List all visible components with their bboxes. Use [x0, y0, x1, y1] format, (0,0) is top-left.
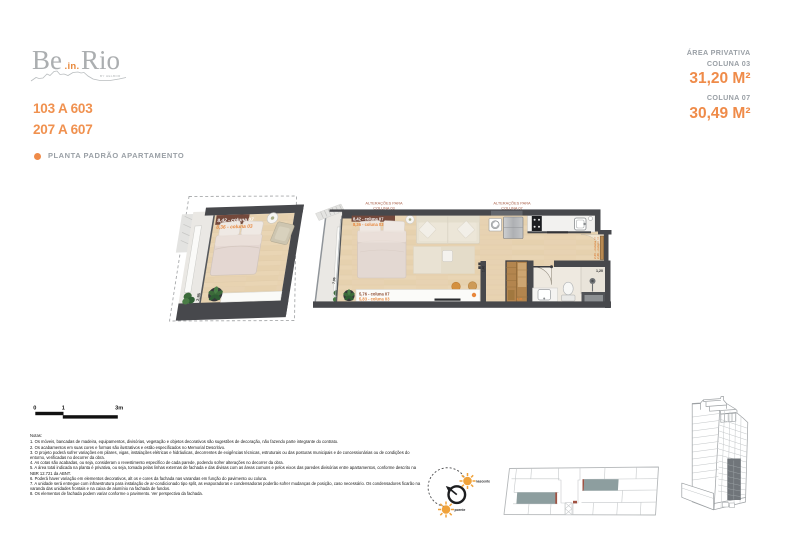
svg-text:8,36 - coluna 03: 8,36 - coluna 03 — [216, 224, 254, 231]
svg-text:8,36 - coluna 03: 8,36 - coluna 03 — [353, 222, 384, 227]
svg-text:poente: poente — [455, 508, 466, 512]
svg-text:1,20: 1,20 — [596, 269, 603, 273]
svg-text:5,76 - coluna 07: 5,76 - coluna 07 — [359, 291, 390, 296]
svg-text:1: 1 — [62, 406, 65, 412]
svg-text:1,45: 1,45 — [517, 297, 523, 301]
svg-text:5,83 - coluna 03: 5,83 - coluna 03 — [359, 297, 390, 302]
svg-text:1,40: 1,40 — [482, 266, 486, 272]
svg-text:8,42 - coluna 07: 8,42 - coluna 07 — [217, 217, 255, 224]
svg-text:3m: 3m — [115, 406, 123, 412]
svg-text:8,42 - coluna 07: 8,42 - coluna 07 — [353, 216, 384, 221]
svg-text:nascente: nascente — [476, 480, 490, 484]
svg-text:7,96: 7,96 — [332, 277, 337, 284]
svg-text:0: 0 — [33, 406, 36, 412]
